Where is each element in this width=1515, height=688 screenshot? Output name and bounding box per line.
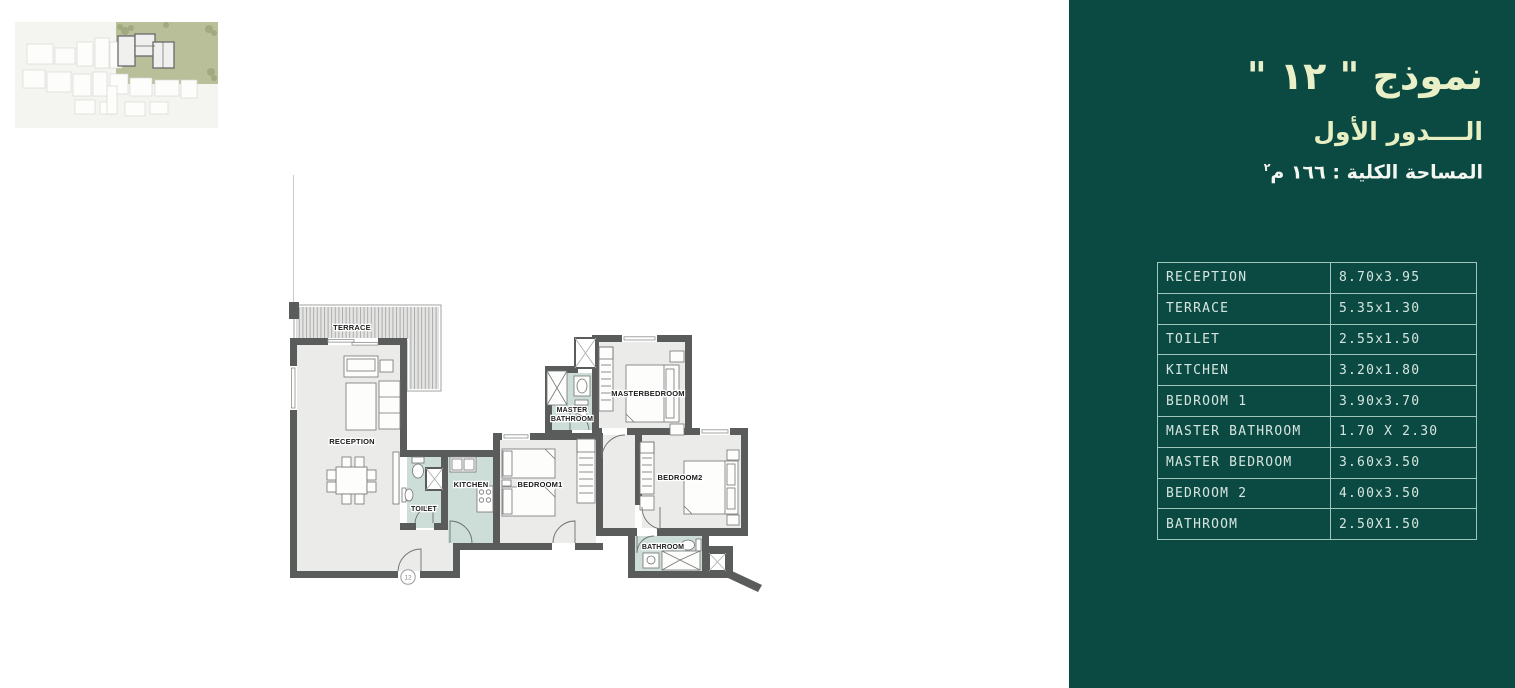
- label-master-bathroom-1: MASTER: [557, 407, 588, 414]
- room-name-cell: RECEPTION: [1158, 263, 1331, 294]
- room-name-cell: MASTER BATHROOM: [1158, 416, 1331, 447]
- table-row: BATHROOM 2.50X1.50: [1158, 509, 1477, 540]
- model-title: نموذج " ١٢ ": [1247, 54, 1483, 98]
- room-dims-cell: 5.35x1.30: [1331, 293, 1477, 324]
- table-row: BEDROOM 1 3.90x3.70: [1158, 386, 1477, 417]
- room-name-cell: BEDROOM 2: [1158, 478, 1331, 509]
- room-name-cell: TERRACE: [1158, 293, 1331, 324]
- total-area: المساحة الكلية : ١٦٦ م٢: [1264, 161, 1483, 183]
- room-dims-cell: 4.00x3.50: [1331, 478, 1477, 509]
- room-dims-cell: 2.55x1.50: [1331, 324, 1477, 355]
- label-kitchen: KITCHEN: [454, 480, 489, 489]
- room-dims-cell: 8.70x3.95: [1331, 263, 1477, 294]
- brochure-page: { "colors": { "panel_bg": "#0b4a43", "ti…: [0, 0, 1515, 688]
- info-panel: نموذج " ١٢ " الــــدور الأول المساحة الك…: [1069, 0, 1515, 688]
- room-name-cell: BATHROOM: [1158, 509, 1331, 540]
- room-dims-cell: 2.50X1.50: [1331, 509, 1477, 540]
- room-dims-cell: 3.90x3.70: [1331, 386, 1477, 417]
- label-masterbedroom: MASTERBEDROOM: [611, 389, 684, 398]
- label-terrace: TERRACE: [333, 323, 371, 332]
- table-row: MASTER BATHROOM 1.70 X 2.30: [1158, 416, 1477, 447]
- room-name-cell: BEDROOM 1: [1158, 386, 1331, 417]
- floor-plan: 12 TERRACE RECEPTION TOILET KITCHEN BEDR…: [285, 170, 775, 595]
- table-row: BEDROOM 2 4.00x3.50: [1158, 478, 1477, 509]
- site-key-plan: [15, 22, 218, 128]
- room-dims-cell: 3.60x3.50: [1331, 447, 1477, 478]
- room-dims-cell: 1.70 X 2.30: [1331, 416, 1477, 447]
- table-row: RECEPTION 8.70x3.95: [1158, 263, 1477, 294]
- unit-number-marker: 12: [401, 570, 415, 584]
- label-bedroom2: BEDROOM2: [658, 473, 703, 482]
- room-name-cell: TOILET: [1158, 324, 1331, 355]
- label-bedroom1: BEDROOM1: [518, 480, 563, 489]
- label-toilet: TOILET: [411, 506, 437, 513]
- room-dims-cell: 3.20x1.80: [1331, 355, 1477, 386]
- label-bathroom: BATHROOM: [642, 544, 684, 551]
- unit-number: 12: [404, 575, 412, 582]
- label-master-bathroom-2: BATHROOM: [551, 416, 593, 423]
- floor-subtitle: الــــدور الأول: [1313, 117, 1483, 146]
- dimensions-table: RECEPTION 8.70x3.95 TERRACE 5.35x1.30 TO…: [1157, 262, 1477, 540]
- table-row: TOILET 2.55x1.50: [1158, 324, 1477, 355]
- label-reception: RECEPTION: [329, 437, 375, 446]
- table-row: TERRACE 5.35x1.30: [1158, 293, 1477, 324]
- room-name-cell: KITCHEN: [1158, 355, 1331, 386]
- table-row: KITCHEN 3.20x1.80: [1158, 355, 1477, 386]
- table-row: MASTER BEDROOM 3.60x3.50: [1158, 447, 1477, 478]
- room-name-cell: MASTER BEDROOM: [1158, 447, 1331, 478]
- total-area-text: المساحة الكلية : ١٦٦ م: [1270, 161, 1483, 183]
